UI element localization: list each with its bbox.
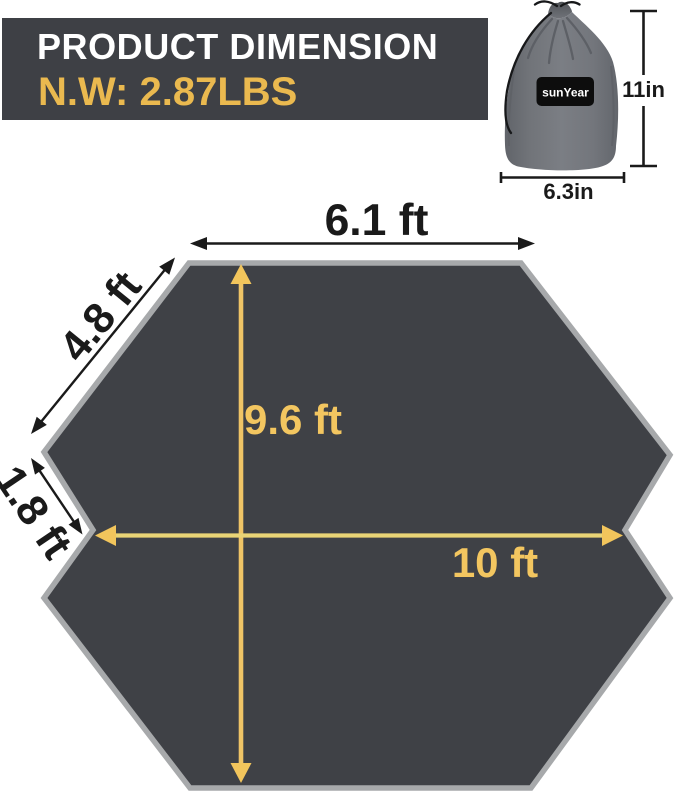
svg-text:6.1 ft: 6.1 ft — [325, 196, 429, 245]
svg-text:sunYear: sunYear — [542, 86, 589, 100]
svg-text:PRODUCT DIMENSION: PRODUCT DIMENSION — [37, 26, 438, 67]
svg-text:N.W: 2.87LBS: N.W: 2.87LBS — [38, 70, 297, 114]
svg-text:10 ft: 10 ft — [452, 539, 538, 586]
svg-text:9.6 ft: 9.6 ft — [244, 396, 342, 443]
svg-text:6.3in: 6.3in — [543, 179, 593, 204]
svg-text:11in: 11in — [622, 77, 665, 102]
